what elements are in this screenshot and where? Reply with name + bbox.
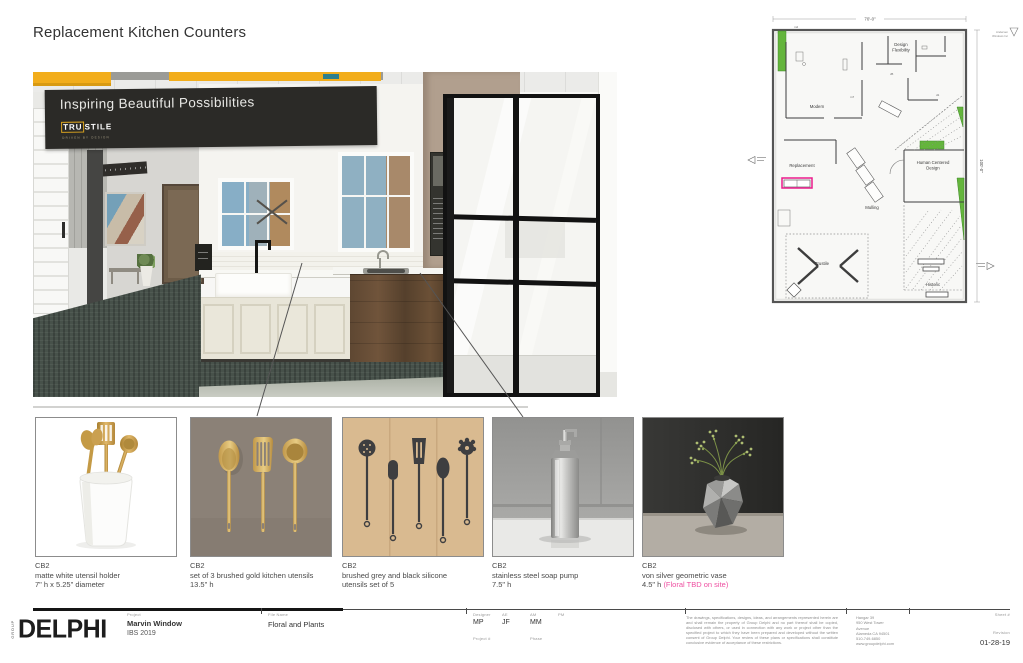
svg-text:Windows Inc: Windows Inc: [992, 34, 1008, 38]
plan-code: m7: [850, 95, 854, 99]
company-address: Hangar 39 950 West Tower Avenue Alameda …: [856, 615, 894, 647]
am-initials: MM: [530, 619, 542, 626]
right-white-wall: [598, 72, 617, 397]
structural-column: [87, 150, 103, 310]
art-frame: [105, 192, 146, 246]
trustile-logo: TRUSTILE: [61, 122, 112, 132]
plan-code: d5: [890, 72, 894, 76]
product-image-soap-pump: [492, 417, 634, 557]
black-faucet-tip: [268, 240, 271, 250]
trustile-banner: Inspiring Beautiful Possibilities TRUSTI…: [45, 86, 378, 149]
svg-text:Design: Design: [926, 166, 940, 171]
room-label-modern: Modern: [810, 104, 825, 109]
planter-plant: [137, 254, 155, 268]
product-caption: CB2 matte white utensil holder 7" h x 5.…: [35, 561, 187, 590]
designer-initials: MP: [473, 619, 484, 626]
walnut-cabinets: [350, 274, 450, 364]
project-name: Marvin Window: [127, 619, 182, 628]
titleblock-divider: [909, 608, 910, 614]
filename-label: File Name: [268, 612, 288, 617]
project-subtitle: IBS 2019: [127, 630, 156, 637]
product-brand: CB2: [190, 561, 342, 571]
titleblock-rule-thick: [33, 608, 343, 611]
product-caption: CB2 von silver geometric vase 4.5" h (Fl…: [642, 561, 794, 590]
filename: Floral and Plants: [268, 620, 324, 629]
plan-height-dimension: 100'-0": [979, 159, 984, 173]
product-caption: CB2 set of 3 brushed gold kitchen utensi…: [190, 561, 342, 590]
glass-mullion: [513, 98, 519, 393]
designer-label: Designer: [473, 612, 491, 617]
product-brand: CB2: [35, 561, 187, 571]
room-label-replacement: Replacement: [789, 163, 815, 168]
ae-label: AE: [502, 612, 508, 617]
product-image-silicone-utensils: [342, 417, 484, 557]
product-image-geometric-vase: [642, 417, 784, 557]
company-website: www.groupdelphi.com: [856, 641, 894, 646]
product-caption: CB2 stainless steel soap pump 7.5" h: [492, 561, 644, 590]
project-label: Project: [127, 612, 141, 617]
product-brand: CB2: [492, 561, 644, 571]
room-label-trustile: Trustile: [815, 261, 830, 266]
sheet-label: Sheet #: [995, 612, 1010, 617]
titleblock-divider: [685, 608, 686, 614]
product-brand: CB2: [342, 561, 494, 571]
counter-sign: [195, 244, 212, 271]
design-sheet: Replacement Kitchen Counters: [0, 0, 1023, 663]
legal-text: The drawings, specifications, designs, i…: [686, 615, 838, 645]
revision-date: 01-28-19: [980, 638, 1010, 647]
left-entry-arrow-icon: [748, 157, 755, 164]
ae-initials: JF: [502, 619, 510, 626]
phase-label: Phase: [530, 636, 542, 641]
teal-accent: [323, 74, 339, 79]
titleblock-divider: [466, 608, 467, 614]
revision-label: Revision: [993, 630, 1010, 635]
room-label-historic: Historic: [926, 282, 941, 287]
bench-leg: [137, 272, 139, 284]
room-label-design-flexibility: Design: [894, 42, 908, 47]
product-image-utensil-holder: [35, 417, 177, 557]
svg-text:Flexibility: Flexibility: [892, 48, 911, 53]
window-over-prep-sink: [338, 152, 414, 252]
floor-plan: 70'-0" 100'-0" Andersen Windows Inc: [740, 12, 1023, 312]
black-faucet: [255, 240, 258, 273]
plan-code: d1: [936, 93, 940, 97]
titleblock-divider: [261, 608, 262, 614]
undermount-sink-basin: [367, 269, 405, 273]
barn-door-handle: [62, 222, 65, 238]
am-label: AM: [530, 612, 536, 617]
product-brand: CB2: [642, 561, 794, 571]
yellow-beam-left: [33, 72, 111, 86]
banner-title: Inspiring Beautiful Possibilities: [60, 94, 255, 111]
titleblock-divider: [846, 608, 847, 614]
logo-group-text: GROUP: [10, 620, 15, 639]
glass-stile: [447, 98, 454, 393]
pm-label: PM: [558, 612, 564, 617]
project-number-label: Project #: [473, 636, 491, 641]
yellow-beam-center: [169, 72, 381, 81]
cream-cabinets: [199, 297, 350, 364]
room-label-mulling: Mulling: [865, 205, 879, 210]
floral-tbd-note: (Floral TBD on site): [663, 580, 728, 589]
bench-leg: [111, 272, 113, 284]
kitchen-render: Inspiring Beautiful Possibilities TRUSTI…: [33, 72, 617, 397]
glass-partition: [443, 94, 600, 397]
floor-through-glass: [447, 355, 596, 393]
chrome-faucet-stem: [379, 258, 381, 268]
floor-right: [598, 372, 617, 397]
room-label-human-centered: Human Centered: [917, 160, 950, 165]
trustile-tagline: DRIVEN BY DESIGN: [62, 135, 110, 140]
right-entry-arrow-icon: [987, 263, 994, 270]
plan-width-dimension: 70'-0": [864, 17, 876, 22]
plan-code: m2: [794, 25, 798, 29]
delphi-logo: DELPHI: [18, 614, 107, 644]
product-image-gold-utensils: [190, 417, 332, 557]
product-caption: CB2 brushed grey and black silicone uten…: [342, 561, 494, 590]
flag-icon: [1010, 28, 1018, 36]
page-title: Replacement Kitchen Counters: [33, 24, 246, 41]
